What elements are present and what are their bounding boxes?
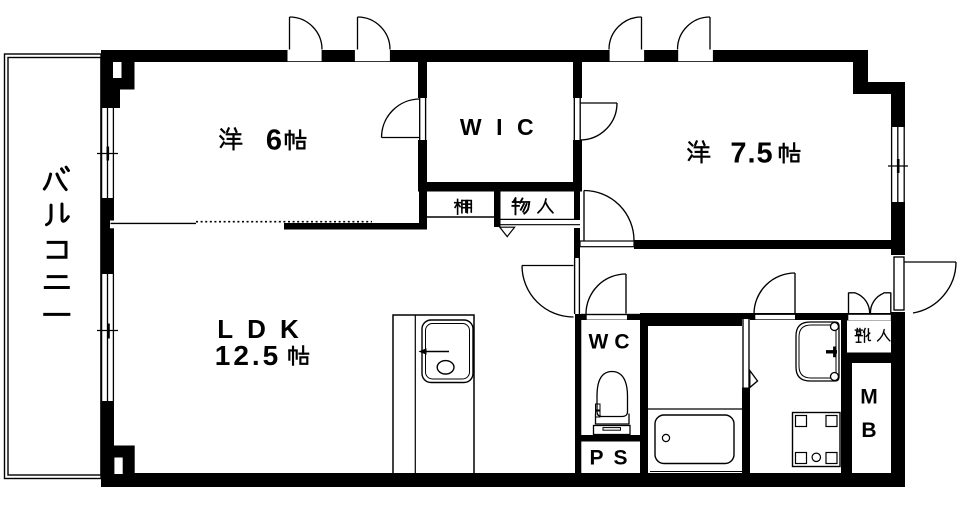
svg-text:B: B — [861, 419, 876, 442]
svg-text:6: 6 — [266, 125, 282, 157]
svg-text:WC: WC — [589, 331, 636, 354]
svg-text:12.5: 12.5 — [215, 340, 282, 371]
svg-text:M: M — [860, 386, 878, 409]
svg-text:7.5: 7.5 — [730, 138, 773, 170]
svg-text:PS: PS — [589, 447, 637, 470]
svg-text:WIC: WIC — [460, 114, 548, 140]
